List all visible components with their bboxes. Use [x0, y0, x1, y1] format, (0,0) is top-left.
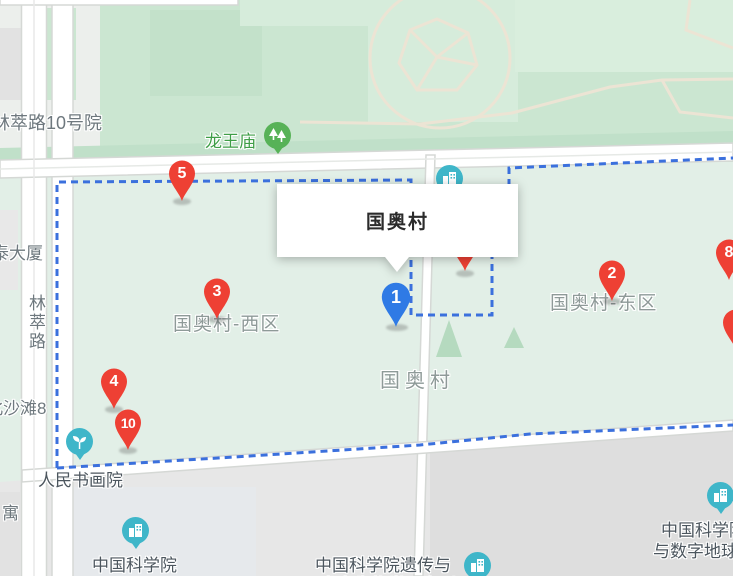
building-icon-cas[interactable] [122, 517, 149, 544]
sprout-icon[interactable] [66, 428, 93, 455]
trees-icon[interactable] [264, 122, 291, 149]
marker-edge[interactable] [720, 307, 733, 351]
marker-5[interactable]: 5 [166, 158, 198, 202]
area-label-guoaocun: 国奥村 [380, 364, 455, 393]
poi-label-longwangmiao[interactable]: 龙王庙 [205, 127, 256, 152]
street-label-linculu-10: 林萃路10号院 [0, 109, 102, 135]
marker-1-selected[interactable]: 1 [378, 280, 414, 328]
building-icon-genetics[interactable] [464, 552, 491, 576]
poi-label-renmin-academy[interactable]: 人民书画院 [38, 466, 123, 491]
marker-10[interactable]: 10 [112, 407, 144, 451]
marker-8[interactable]: 8 [713, 237, 733, 281]
street-label-beishatan8: 北沙滩8 [0, 394, 46, 419]
marker-2[interactable]: 2 [596, 258, 628, 302]
marker-4[interactable]: 4 [98, 366, 130, 410]
poi-label-genetics-line2[interactable]: 发育生物学研究所 [320, 571, 456, 576]
street-label-tai-dasha: 泰大厦 [0, 239, 43, 264]
poi-label-digital-earth-line2[interactable]: 与数字地球研 [653, 537, 733, 562]
building-icon-digital-earth[interactable] [707, 482, 733, 509]
marker-3[interactable]: 3 [201, 276, 233, 320]
map-canvas[interactable]: 国奥村 国奥村-西区 国奥村-东区 龙王庙 人民书画院 中国科学院 中国科学院遗… [0, 0, 733, 576]
poi-label-cas[interactable]: 中国科学院 [92, 551, 177, 576]
info-window-tail [385, 257, 409, 272]
street-label-yu: 寓 [2, 499, 19, 524]
info-window[interactable]: 国奥村 [277, 184, 518, 257]
street-label-linculu: 林萃路 [23, 294, 48, 351]
info-window-title: 国奥村 [366, 207, 429, 234]
